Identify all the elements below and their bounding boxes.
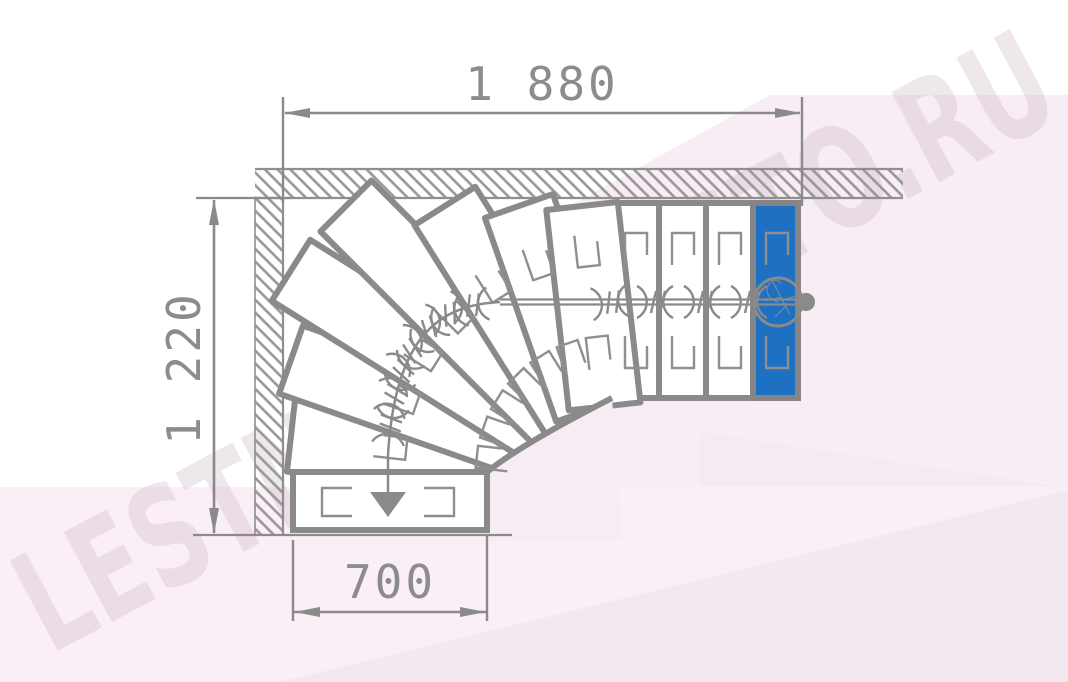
staircase-plan-drawing: LESTNICAPROSTO.RU	[0, 0, 1068, 682]
left-dim-label: 1 220	[157, 291, 211, 444]
stair-plan-page: LESTNICAPROSTO.RU	[0, 0, 1068, 682]
walk-line-start-dot	[797, 293, 815, 311]
wall-top-hatch	[255, 169, 903, 198]
wall-left-hatch	[255, 198, 283, 535]
top-dim-label: 1 880	[465, 57, 618, 111]
bottom-dim-label: 700	[344, 555, 436, 609]
